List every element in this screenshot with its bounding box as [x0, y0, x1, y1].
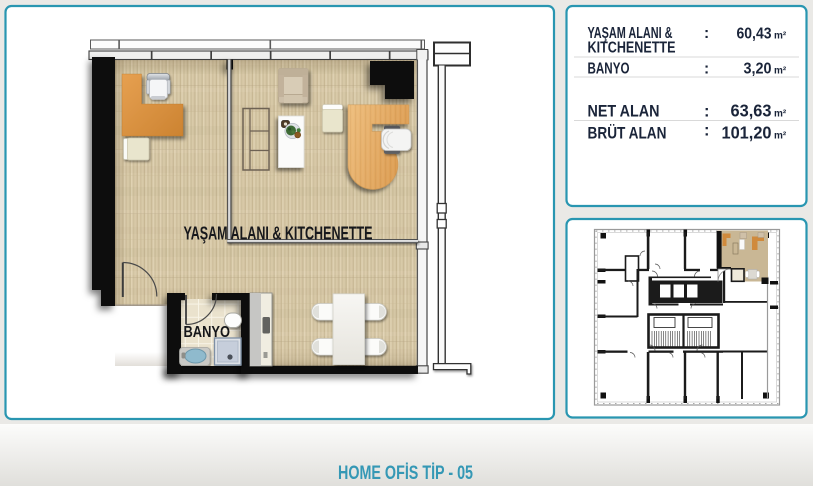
svg-text::: :: [704, 103, 710, 121]
svg-text:NET ALAN: NET ALAN: [588, 103, 660, 121]
svg-text::: :: [704, 122, 710, 140]
svg-text:m²: m²: [774, 31, 787, 42]
svg-text:BANYO: BANYO: [184, 324, 231, 341]
svg-text:BRÜT ALAN: BRÜT ALAN: [588, 124, 667, 143]
svg-text:63,63: 63,63: [731, 101, 772, 121]
svg-text:KITCHENETTE: KITCHENETTE: [588, 40, 676, 57]
svg-text:60,43: 60,43: [737, 26, 772, 43]
svg-text:m²: m²: [774, 131, 787, 142]
svg-text::: :: [704, 25, 709, 42]
svg-text:BANYO: BANYO: [588, 61, 630, 78]
svg-text:m²: m²: [774, 109, 787, 120]
svg-text::: :: [704, 61, 709, 78]
svg-text:HOME OFİS TİP - 05: HOME OFİS TİP - 05: [338, 463, 473, 484]
svg-text:m²: m²: [774, 66, 787, 77]
svg-text:101,20: 101,20: [722, 123, 772, 143]
svg-text:3,20: 3,20: [744, 61, 772, 78]
svg-text:YAŞAM ALANI & KITCHENETTE: YAŞAM ALANI & KITCHENETTE: [184, 223, 373, 244]
